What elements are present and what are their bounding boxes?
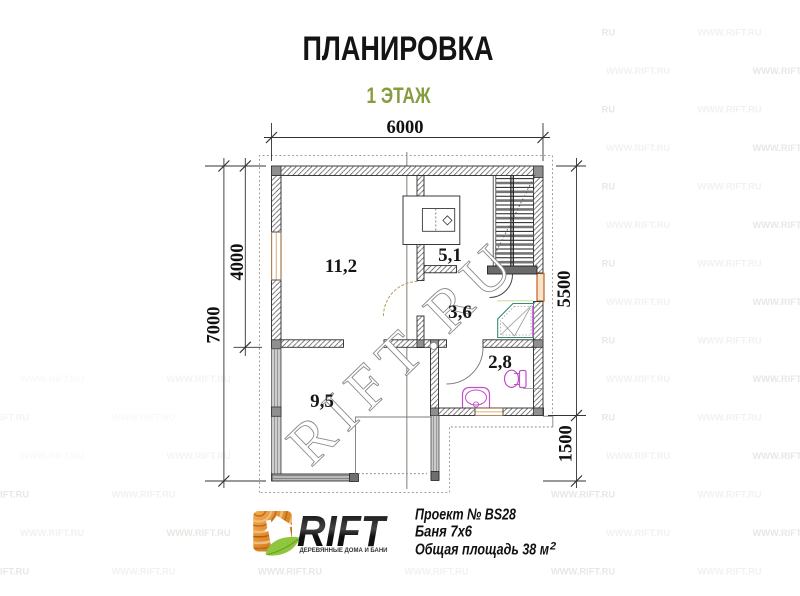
svg-text:ПЛАНИРОВКА: ПЛАНИРОВКА [303,30,494,68]
svg-text:WWW.RIFT.RU: WWW.RIFT.RU [167,451,231,461]
svg-text:WWW.RIFT.RU: WWW.RIFT.RU [753,528,800,538]
svg-text:Баня 7х6: Баня 7х6 [415,524,472,541]
svg-text:6000: 6000 [387,118,424,138]
svg-text:WWW.RIFT.RU: WWW.RIFT.RU [698,259,762,269]
svg-text:WWW.RIFT.RU: WWW.RIFT.RU [258,567,322,577]
svg-text:WWW.RIFT.RU: WWW.RIFT.RU [551,567,615,577]
svg-text:WWW.RIFT.RU: WWW.RIFT.RU [0,567,29,577]
svg-text:WWW.RIFT.RU: WWW.RIFT.RU [753,66,800,76]
svg-text:WWW.RIFT.RU: WWW.RIFT.RU [698,105,762,115]
svg-text:ДЕРЕВЯННЫЕ ДОМА И БАНИ: ДЕРЕВЯННЫЕ ДОМА И БАНИ [300,547,388,554]
svg-text:WWW.RIFT.RU: WWW.RIFT.RU [753,297,800,307]
svg-text:WWW.RIFT.RU: WWW.RIFT.RU [698,567,762,577]
svg-text:1500: 1500 [557,425,577,462]
svg-text:WWW.RIFT.RU: WWW.RIFT.RU [20,528,84,538]
svg-text:2: 2 [549,541,556,553]
svg-text:1 ЭТАЖ: 1 ЭТАЖ [367,83,431,108]
svg-text:5,1: 5,1 [438,245,462,266]
svg-text:WWW.RIFT.RU: WWW.RIFT.RU [405,567,469,577]
svg-text:WWW.RIFT.RU: WWW.RIFT.RU [551,490,615,500]
svg-text:9,5: 9,5 [310,391,334,412]
svg-text:Проект № BS28: Проект № BS28 [415,507,516,524]
svg-text:WWW.RIFT.RU: WWW.RIFT.RU [606,297,670,307]
svg-text:WWW.RIFT.RU: WWW.RIFT.RU [606,451,670,461]
svg-text:WWW.RIFT.RU: WWW.RIFT.RU [753,451,800,461]
svg-text:WWW.RIFT.RU: WWW.RIFT.RU [753,143,800,153]
svg-text:4000: 4000 [228,244,248,281]
svg-text:11,2: 11,2 [325,256,357,277]
svg-text:WWW.RIFT.RU: WWW.RIFT.RU [698,182,762,192]
svg-text:WWW.RIFT.RU: WWW.RIFT.RU [20,374,84,384]
svg-text:WWW.RIFT.RU: WWW.RIFT.RU [698,413,762,423]
svg-text:3,6: 3,6 [448,302,472,323]
svg-text:WWW.RIFT.RU: WWW.RIFT.RU [112,567,176,577]
svg-text:WWW.RIFT.RU: WWW.RIFT.RU [698,336,762,346]
svg-text:7000: 7000 [204,307,224,344]
svg-text:WWW.RIFT.RU: WWW.RIFT.RU [606,220,670,230]
svg-text:Общая площадь 38 м: Общая площадь 38 м [415,542,549,559]
svg-text:WWW.RIFT.RU: WWW.RIFT.RU [753,374,800,384]
svg-text:WWW.RIFT.RU: WWW.RIFT.RU [0,490,29,500]
svg-text:WWW.RIFT.RU: WWW.RIFT.RU [20,451,84,461]
svg-text:WWW.RIFT.RU: WWW.RIFT.RU [606,374,670,384]
svg-text:WWW.RIFT.RU: WWW.RIFT.RU [112,490,176,500]
svg-text:WWW.RIFT.RU: WWW.RIFT.RU [698,28,762,38]
svg-text:WWW.RIFT.RU: WWW.RIFT.RU [606,143,670,153]
svg-text:WWW.RIFT.RU: WWW.RIFT.RU [606,528,670,538]
svg-text:WWW.RIFT.RU: WWW.RIFT.RU [698,490,762,500]
svg-text:WWW.RIFT.RU: WWW.RIFT.RU [0,413,29,423]
svg-text:WWW.RIFT.RU: WWW.RIFT.RU [606,66,670,76]
svg-text:WWW.RIFT.RU: WWW.RIFT.RU [753,220,800,230]
svg-text:WWW.RIFT.RU: WWW.RIFT.RU [167,374,231,384]
svg-text:5500: 5500 [555,271,575,308]
svg-text:2,8: 2,8 [488,352,512,373]
svg-text:WWW.RIFT.RU: WWW.RIFT.RU [112,413,176,423]
svg-text:WWW.RIFT.RU: WWW.RIFT.RU [167,528,231,538]
